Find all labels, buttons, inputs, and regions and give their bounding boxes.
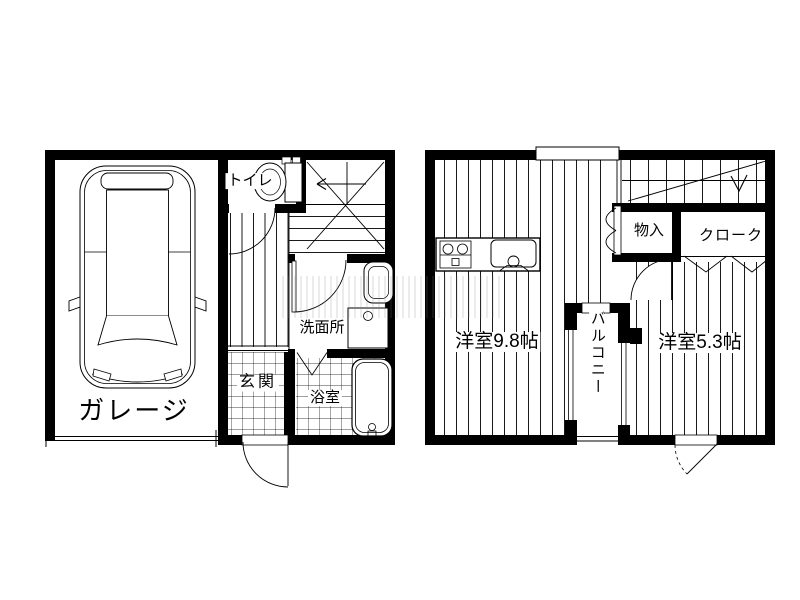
- entrance-door-swing: [242, 435, 288, 487]
- room98-floor: [435, 160, 612, 304]
- label-cloak: クローク: [697, 228, 765, 244]
- kitchen-sink-icon: [491, 240, 536, 271]
- washroom-door-swing: [292, 260, 346, 312]
- floorplan-canvas: ガレージ トイレ 洗面所 玄関 浴室 洋室9.8帖 洋室5.3帖 バルコニー 物…: [0, 0, 800, 600]
- label-entrance: 玄関: [237, 375, 279, 392]
- window-top: [536, 147, 619, 160]
- washing-machine-icon: [348, 308, 388, 348]
- garage-opening: [45, 430, 218, 447]
- label-room98: 洋室9.8帖: [453, 332, 540, 352]
- label-storage: 物入: [632, 223, 666, 239]
- balcony-window-right: [618, 343, 630, 425]
- label-toilet: トイレ: [225, 173, 274, 189]
- kitchen-counter: [436, 238, 540, 271]
- label-washroom: 洗面所: [297, 320, 346, 336]
- entrance-tile-floor: [228, 352, 288, 435]
- floorplan-drawing: [0, 0, 800, 600]
- label-room53: 洋室5.3帖: [656, 333, 743, 353]
- washbasin-icon: [364, 262, 393, 303]
- car-icon: [69, 166, 206, 388]
- room53-outswing-door: [675, 435, 717, 474]
- room98-floor-lower: [435, 304, 565, 435]
- bathtub-icon: [352, 359, 392, 436]
- label-bathroom: 浴室: [308, 390, 342, 406]
- hallway-floor: [229, 213, 289, 347]
- stair-direction-arrow-1f: [317, 179, 366, 190]
- label-balcony: バルコニー: [589, 309, 605, 398]
- label-garage: ガレージ: [76, 397, 191, 424]
- balcony-window-left: [565, 330, 577, 420]
